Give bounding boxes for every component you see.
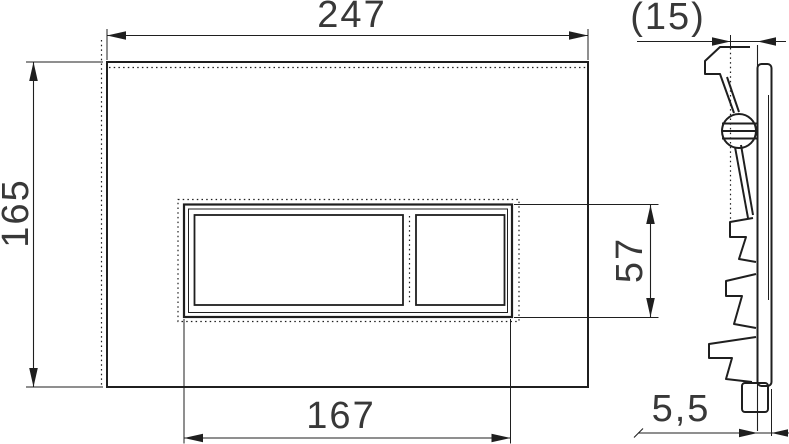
dim-label-overall-width: 247 (292, 0, 412, 35)
button-frame-inner (189, 209, 508, 313)
dimension-arrow (712, 37, 731, 46)
small-flush-button (416, 215, 505, 305)
plate-outline (107, 62, 588, 387)
dimension-overall-depth (637, 37, 786, 46)
clip-bottom-hook (742, 383, 768, 412)
profile-plate-body (758, 64, 772, 386)
dimension-arrow (29, 368, 38, 387)
front-view (102, 40, 589, 387)
side-view (705, 35, 772, 431)
dim-label-overall-depth: (15) (608, 0, 728, 37)
flush-plate-technical-drawing: 247 165 167 57 (15) 5,5 (0, 0, 789, 444)
dimension-overall-height (26, 62, 103, 387)
dimension-arrow (107, 31, 126, 40)
dimension-arrow (492, 434, 511, 443)
dimension-arrow (739, 429, 758, 438)
dim-label-overall-height: 165 (0, 153, 36, 273)
mounting-clip-profile (705, 47, 768, 412)
dimension-arrow (569, 31, 588, 40)
large-flush-button (195, 215, 404, 305)
dimension-arrow (772, 429, 789, 437)
dimension-arrow (758, 37, 777, 46)
button-recess-hidden-outline (178, 200, 519, 322)
dimension-arrow (184, 434, 203, 443)
drawing-linework (0, 0, 789, 444)
button-frame-outer (184, 205, 512, 318)
dim-label-panel-thickness: 5,5 (621, 389, 741, 429)
dimension-arrow (29, 62, 38, 81)
dim-label-button-panel-height: 57 (610, 200, 650, 320)
dim-label-button-panel-width: 167 (281, 396, 401, 436)
